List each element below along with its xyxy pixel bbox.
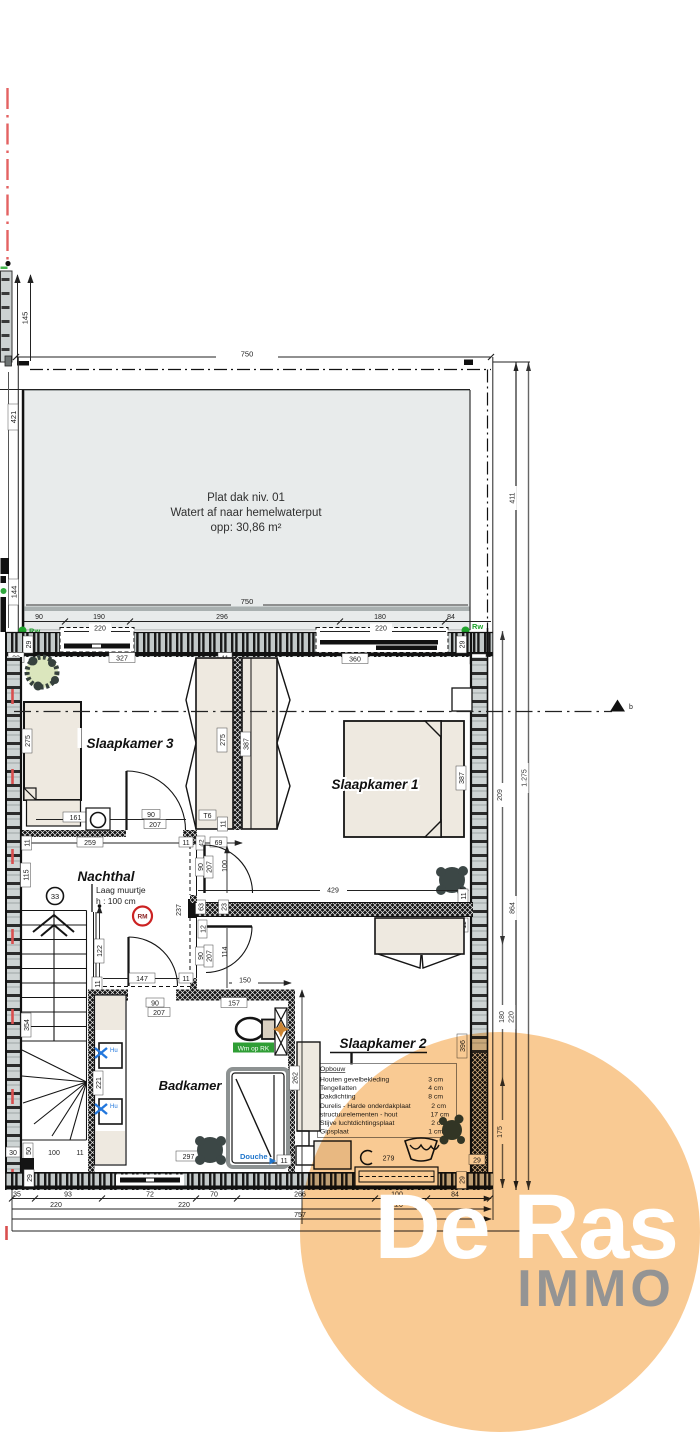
svg-text:84: 84: [447, 614, 455, 621]
svg-text:11: 11: [76, 1150, 83, 1157]
svg-text:296: 296: [216, 614, 228, 621]
svg-text:30: 30: [9, 1150, 17, 1157]
svg-text:1.275: 1.275: [522, 769, 529, 787]
svg-text:63: 63: [199, 903, 206, 911]
svg-text:Watert af naar hemelwaterput: Watert af naar hemelwaterput: [170, 507, 322, 519]
svg-text:h : 100 cm: h : 100 cm: [96, 896, 136, 906]
svg-text:122: 122: [97, 945, 104, 957]
svg-text:72: 72: [146, 1192, 154, 1199]
svg-text:411: 411: [510, 492, 517, 503]
svg-text:100: 100: [48, 1150, 60, 1157]
svg-text:11: 11: [461, 892, 468, 899]
svg-text:Douche: Douche: [240, 1152, 268, 1161]
svg-text:207: 207: [149, 822, 161, 829]
svg-text:220: 220: [509, 1011, 516, 1023]
svg-text:237: 237: [176, 904, 183, 916]
svg-text:35: 35: [13, 1192, 21, 1199]
svg-text:opp: 30,86 m²: opp: 30,86 m²: [211, 522, 282, 534]
svg-text:144: 144: [10, 586, 19, 599]
svg-text:50: 50: [26, 1147, 33, 1155]
svg-text:180: 180: [374, 614, 386, 621]
svg-text:11: 11: [182, 976, 189, 983]
svg-text:354: 354: [24, 1019, 31, 1031]
svg-text:12: 12: [201, 925, 208, 933]
svg-text:Nachthal: Nachthal: [77, 869, 134, 884]
svg-text:b: b: [629, 704, 633, 711]
svg-text:IMMO: IMMO: [517, 1260, 675, 1318]
svg-text:Slaapkamer 1: Slaapkamer 1: [331, 777, 418, 792]
svg-text:Hu: Hu: [110, 1104, 118, 1110]
svg-text:23: 23: [222, 903, 229, 911]
svg-text:100: 100: [222, 860, 229, 872]
svg-text:209: 209: [497, 789, 504, 801]
svg-text:750: 750: [241, 597, 254, 606]
svg-text:750: 750: [241, 350, 254, 359]
svg-text:Wm op RK: Wm op RK: [238, 1046, 270, 1053]
svg-text:Rw: Rw: [472, 622, 483, 631]
svg-text:11: 11: [25, 839, 32, 846]
svg-text:114: 114: [222, 946, 229, 957]
svg-text:Laag muurtje: Laag muurtje: [96, 885, 146, 895]
svg-text:29: 29: [460, 641, 467, 649]
svg-text:147: 147: [136, 976, 148, 983]
svg-text:161: 161: [70, 815, 82, 822]
svg-text:Opbouw: Opbouw: [320, 1066, 345, 1073]
svg-text:11: 11: [95, 980, 102, 987]
svg-text:220: 220: [178, 1202, 190, 1209]
svg-text:70: 70: [210, 1192, 218, 1199]
svg-text:29: 29: [26, 641, 33, 649]
svg-text:221: 221: [96, 1077, 103, 1089]
svg-text:864: 864: [510, 902, 517, 914]
svg-text:259: 259: [84, 840, 96, 847]
svg-text:275: 275: [220, 734, 227, 746]
svg-text:207: 207: [207, 861, 214, 873]
svg-text:157: 157: [228, 1001, 240, 1008]
svg-text:Badkamer: Badkamer: [159, 1078, 223, 1093]
svg-text:150: 150: [239, 978, 251, 985]
svg-text:115: 115: [24, 869, 31, 880]
svg-text:90: 90: [147, 812, 155, 819]
svg-text:275: 275: [25, 735, 32, 747]
svg-text:145: 145: [21, 312, 30, 325]
svg-text:11: 11: [182, 840, 189, 847]
svg-text:11: 11: [280, 1158, 287, 1165]
svg-text:220: 220: [375, 626, 387, 633]
svg-text:387: 387: [244, 738, 251, 750]
svg-text:190: 190: [93, 614, 105, 621]
svg-text:297: 297: [183, 1154, 195, 1161]
svg-text:Plat dak niv. 01: Plat dak niv. 01: [207, 492, 285, 504]
svg-text:Slaapkamer 2: Slaapkamer 2: [339, 1036, 427, 1051]
svg-text:Tengellatten: Tengellatten: [320, 1085, 357, 1092]
svg-text:327: 327: [116, 656, 128, 663]
svg-text:RM: RM: [137, 914, 147, 921]
svg-text:262: 262: [293, 1072, 300, 1084]
svg-text:93: 93: [64, 1192, 72, 1199]
svg-text:220: 220: [50, 1202, 62, 1209]
svg-text:421: 421: [9, 411, 18, 424]
svg-text:387: 387: [459, 772, 466, 784]
svg-text:Slaapkamer 3: Slaapkamer 3: [86, 736, 174, 751]
svg-text:90: 90: [151, 1001, 159, 1008]
svg-text:T6: T6: [203, 813, 211, 820]
svg-text:220: 220: [94, 626, 106, 633]
svg-text:180: 180: [499, 1011, 506, 1023]
svg-text:207: 207: [207, 950, 214, 962]
svg-text:Hu: Hu: [110, 1048, 118, 1054]
svg-text:360: 360: [349, 657, 361, 664]
svg-text:429: 429: [327, 888, 339, 895]
svg-text:33: 33: [51, 892, 59, 901]
svg-text:90: 90: [35, 614, 43, 621]
svg-text:11: 11: [221, 820, 228, 827]
svg-text:29: 29: [27, 1174, 34, 1182]
svg-text:207: 207: [153, 1010, 165, 1017]
